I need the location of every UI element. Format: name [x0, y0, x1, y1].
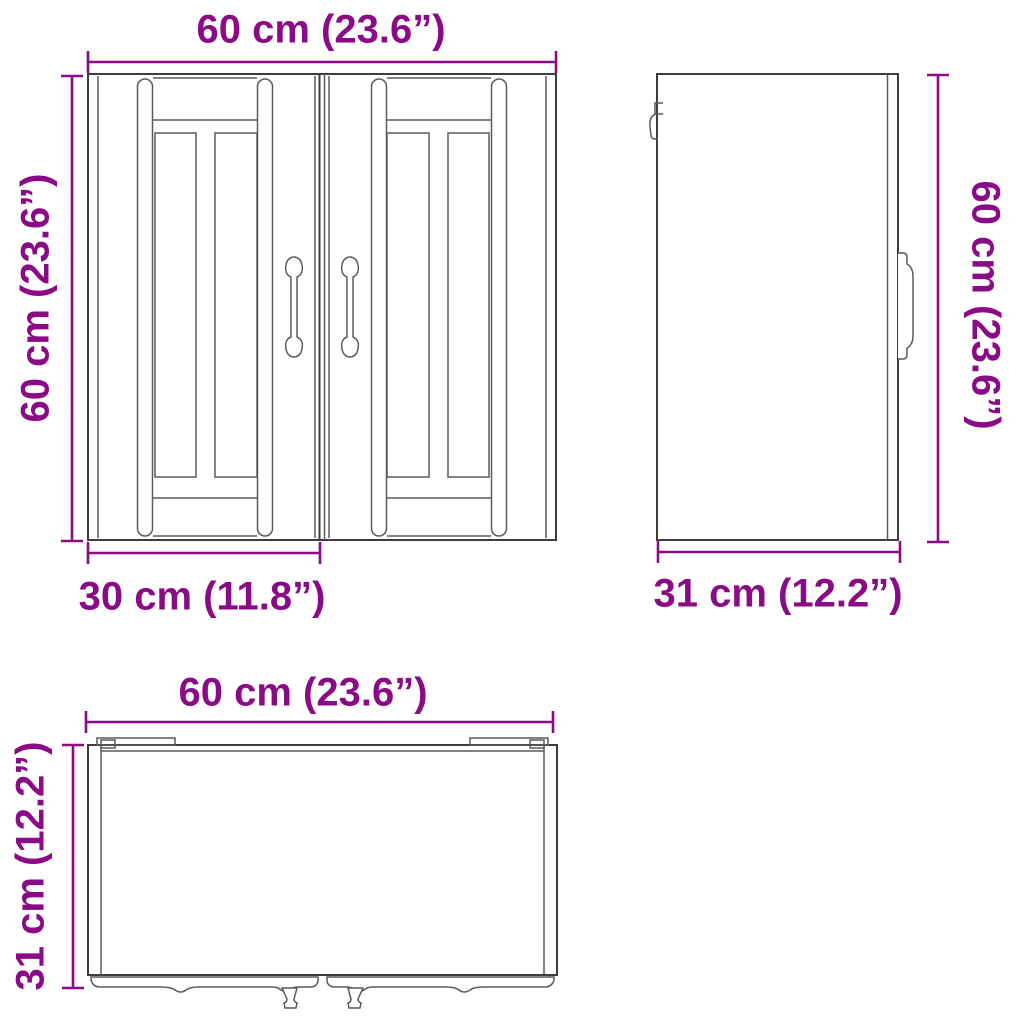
side-height-dimension-label: 60 cm (23.6”): [963, 180, 1008, 429]
side-view-drawing: [650, 74, 913, 540]
front-height-dimension-label: 60 cm (23.6”): [14, 173, 59, 422]
top-depth-dimension-line: [62, 745, 84, 988]
front-width-dimension-label: 60 cm (23.6”): [196, 8, 445, 53]
front-height-dimension-line: [61, 76, 83, 541]
wall-bracket-left: [97, 738, 175, 748]
side-depth-dimension-line: [658, 541, 900, 563]
dimension-lines: [61, 51, 949, 988]
product-dimension-diagram: 60 cm (23.6”) 60 cm (23.6”) 30 cm (11.8”…: [0, 0, 1024, 1024]
door-slab-top: [91, 977, 318, 1008]
top-width-dimension-label: 60 cm (23.6”): [178, 671, 427, 716]
wall-bracket-right: [470, 738, 548, 748]
front-width-dimension-line: [88, 51, 556, 73]
front-view-drawing: [88, 74, 556, 540]
line-art-canvas: [0, 0, 1024, 1024]
knob-top: [282, 988, 297, 1008]
door-handle-front: [286, 257, 303, 357]
top-view-drawing: [88, 738, 557, 1008]
front-door-width-dimension-line: [88, 542, 320, 564]
top-depth-dimension-label: 31 cm (12.2”): [9, 741, 54, 990]
side-depth-dimension-label: 31 cm (12.2”): [653, 572, 902, 617]
door-handle-side: [898, 253, 913, 359]
front-door-width-dimension-label: 30 cm (11.8”): [79, 575, 326, 620]
cabinet-door-front: [98, 76, 315, 538]
side-height-dimension-line: [927, 75, 949, 542]
